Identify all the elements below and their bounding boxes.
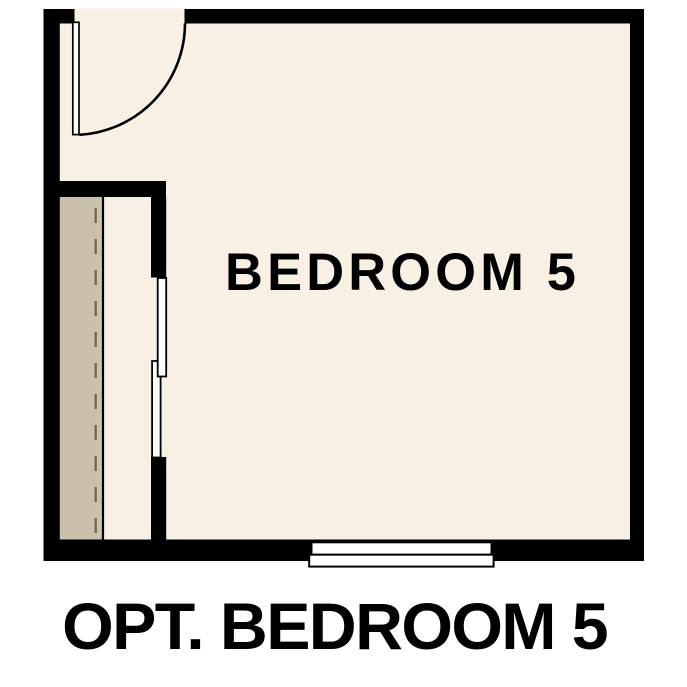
svg-text:OPT. BEDROOM 5: OPT. BEDROOM 5	[62, 590, 608, 664]
svg-text:BEDROOM 5: BEDROOM 5	[225, 244, 580, 302]
